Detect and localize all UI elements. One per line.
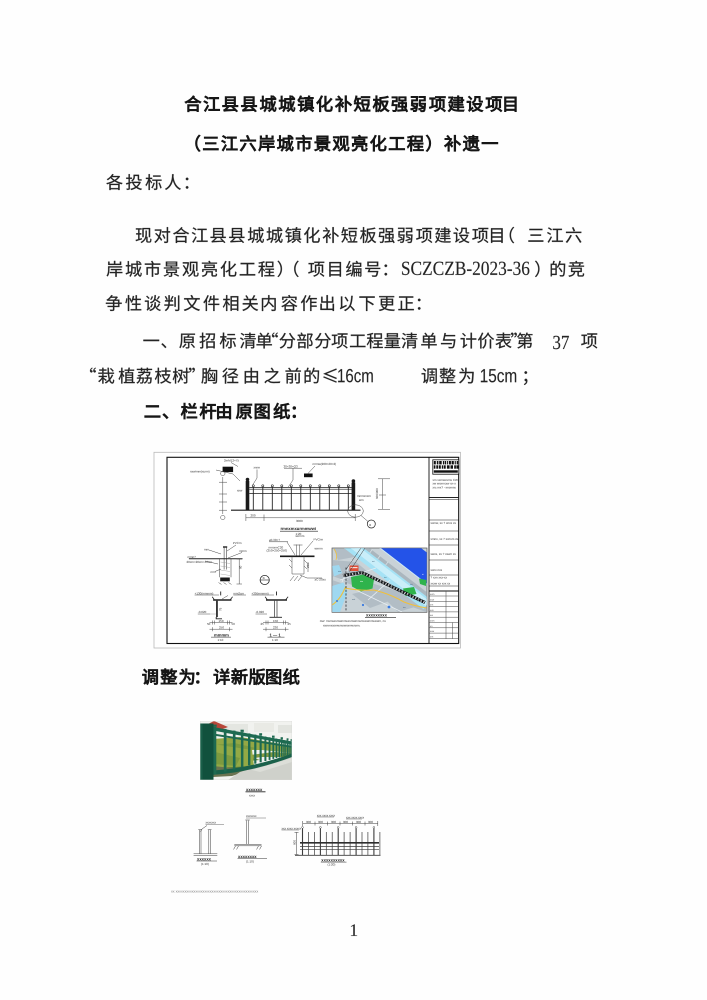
svg-text:(250×250×250): (250×250×250) [267, 549, 288, 553]
svg-text:900: 900 [331, 820, 336, 824]
svg-text:xnw: xnw [237, 489, 243, 493]
svg-text:(1:10): (1:10) [246, 860, 254, 864]
svg-text:xxx xxxx xxxx: xxx xxxx xxxx [346, 815, 365, 819]
svg-text:xnrm: xnrm [254, 465, 261, 469]
svg-text:wm: wm [359, 498, 364, 502]
svg-text:1 — 1: 1 — 1 [270, 632, 282, 637]
svg-text:B: B [263, 576, 265, 580]
svg-text:200: 200 [251, 514, 256, 518]
svg-text:xxxxxxx: xxxxxxx [206, 821, 217, 825]
svg-text:PVCm: PVCm [233, 541, 242, 545]
svg-text:900: 900 [318, 820, 323, 824]
svg-text:25: 25 [261, 622, 265, 626]
svg-text:250: 250 [306, 563, 310, 568]
svg-text:25: 25 [288, 622, 292, 626]
svg-text:xx xxxxxxxxxxxxxxxxxxxxxxxxxxx: xx xxxxxxxxxxxxxxxxxxxxxxxxxxxxxxxxxxxxx… [171, 889, 258, 893]
svg-text:? xxn xxx-xx: ? xxn xxx-xx [431, 576, 448, 580]
svg-text:mrmw(200×20×2): mrmw(200×20×2) [313, 462, 337, 466]
svg-text:xxxxxx: xxxxxx [197, 856, 212, 861]
svg-text:xxmw, xx ? xnxx xx: xxmw, xx ? xnxx xx [431, 521, 457, 525]
svg-text:150: 150 [219, 619, 224, 623]
svg-text:nxwimm(xurm): nxwimm(xurm) [190, 470, 210, 474]
svg-text:900: 900 [343, 820, 348, 824]
svg-text:900: 900 [306, 820, 311, 824]
svg-text:xxxw xx xxx xx: xxxw xx xxx xx [431, 582, 451, 586]
svg-text:3000: 3000 [296, 519, 303, 523]
svg-text:xxx xxxx xxxx: xxx xxxx xxxx [317, 813, 336, 817]
svg-text:om: om [394, 586, 397, 589]
svg-text:+130(mmmm): +130(mmmm) [195, 591, 214, 595]
svg-text:2mM12×75: 2mM12×75 [224, 459, 239, 463]
svg-text:wm: wm [352, 598, 355, 601]
svg-text:xm: xm [430, 635, 433, 638]
svg-text:xmnx, xx ? xxnxm xw: xmnx, xx ? xxnxm xw [431, 537, 460, 541]
svg-text:xxm: xxm [430, 620, 434, 623]
svg-text:PVCrm: PVCrm [314, 537, 324, 541]
svg-text:mmn?: mmn? [188, 555, 197, 559]
svg-text:wn: wn [372, 560, 375, 563]
svg-text:mw: mw [360, 580, 364, 583]
svg-text:xxxxxxx: xxxxxxx [246, 814, 257, 818]
svg-text:mm: mm [204, 548, 209, 552]
svg-text:xwxx, xx ? xxwn xx: xwxx, xx ? xxwn xx [431, 552, 457, 556]
svg-text:xxw: xxw [430, 598, 434, 601]
svg-text:-0.020: -0.020 [256, 610, 265, 614]
svg-text:xwnmxwxnwmxwnxmwnxm.: xwnmxwxnwmxwnxmwnxm. [323, 623, 361, 627]
svg-text:mmmm: mmmm [214, 632, 229, 637]
svg-text:900: 900 [356, 820, 361, 824]
svg-text:60: 60 [239, 565, 243, 569]
svg-text:rmnxmxurmmwwi: rmnxmxurmmwwi [281, 526, 317, 531]
svg-text:600/900: 600/900 [375, 488, 379, 499]
svg-text:230: 230 [273, 625, 278, 629]
svg-text:1:10: 1:10 [272, 638, 278, 642]
svg-text:mw: mw [338, 570, 342, 573]
svg-text:1:10: 1:10 [218, 638, 224, 642]
svg-text:250: 250 [219, 625, 224, 629]
svg-text:xxw: xxw [430, 630, 434, 633]
svg-text:xxx xxxx xxxxx: xxx xxxx xxxxx [282, 826, 302, 830]
svg-text:mmm: mmm [239, 549, 247, 553]
svg-text:xxn: xxn [430, 609, 434, 612]
svg-text:xm: xm [430, 604, 433, 607]
svg-text:75: 75 [219, 607, 223, 611]
svg-text:30×30×Q3: 30×30×Q3 [284, 464, 299, 468]
svg-text:xxxx: xxxx [249, 794, 256, 798]
svg-text:mm2cm: mm2cm [233, 591, 244, 595]
svg-text:(1:10): (1:10) [201, 862, 209, 866]
svg-text:mm: mm [211, 570, 216, 574]
svg-text:xxxxxxxxxx: xxxxxxxxxx [321, 857, 345, 862]
svg-text:xxm: xxm [430, 593, 434, 596]
svg-text:≥C-20xu: ≥C-20xu [315, 578, 327, 582]
svg-text:B: B [369, 523, 371, 527]
svg-text:wmrm: wmrm [315, 547, 324, 551]
svg-text:xw: xw [430, 614, 433, 617]
svg-text:wirmm: wirmm [296, 534, 305, 538]
svg-text:150: 150 [273, 619, 278, 623]
svg-text:≥0.30×?: ≥0.30×? [269, 538, 280, 542]
svg-text:xxxxxxxxx: xxxxxxxxx [366, 613, 388, 618]
svg-text:xxxxxxx: xxxxxxx [246, 787, 263, 792]
svg-text:+30(mmmm): +30(mmmm) [252, 591, 269, 595]
svg-text:xxnx nxx: xxnx nxx [431, 568, 443, 572]
svg-text:50: 50 [232, 622, 236, 626]
svg-text:xxxxxxxx: xxxxxxxx [238, 854, 257, 859]
svg-text:600: 600 [293, 840, 297, 845]
svg-text:900: 900 [368, 820, 373, 824]
svg-text:xrc mx? - mxmxw: xrc mx? - mxmxw [433, 485, 457, 489]
svg-text:(1:20): (1:20) [328, 863, 336, 867]
svg-text:-0.020: -0.020 [198, 610, 207, 614]
svg-text:50: 50 [207, 622, 211, 626]
